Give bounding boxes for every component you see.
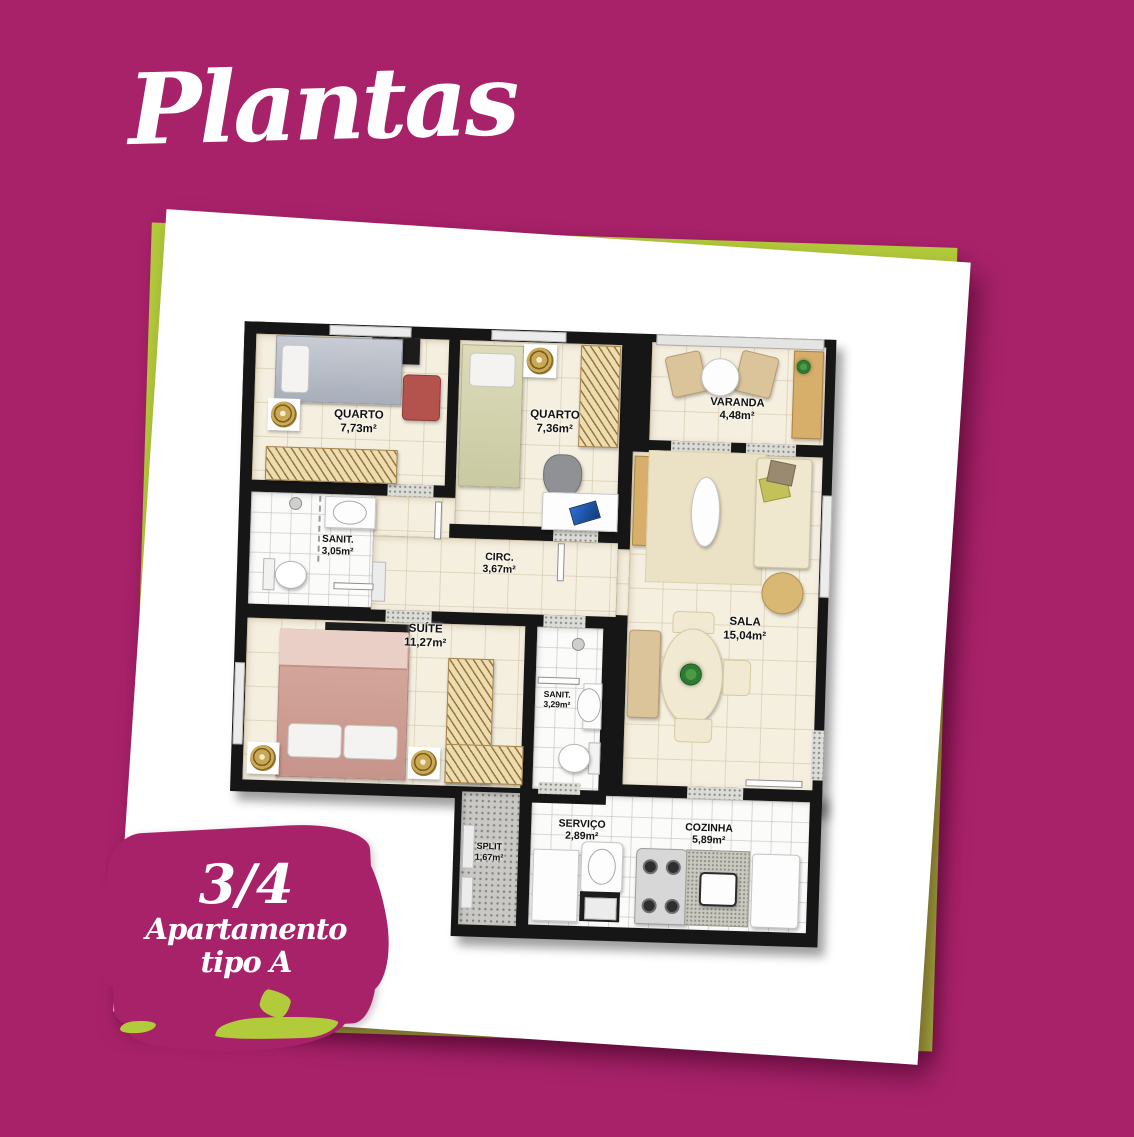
stove	[634, 848, 688, 926]
corridor-arm-floor	[373, 495, 455, 538]
fridge	[750, 853, 800, 928]
room-label-quarto-2: QUARTO7,36m²	[499, 407, 610, 438]
pillow	[287, 723, 342, 759]
door-leaf-sanit-1	[333, 582, 373, 590]
stove-burner	[641, 898, 656, 913]
stove-burner	[666, 860, 681, 875]
room-label-cozinha: COZINHA5,89m²	[666, 821, 753, 848]
corridor-floor	[371, 535, 618, 617]
shower-glass	[538, 677, 580, 685]
room-label-sanit-1: SANIT.3,05m²	[305, 533, 370, 559]
door-threshold-cozinha	[687, 786, 743, 800]
unit-type-line-1: Apartamento	[100, 913, 392, 946]
pillow	[343, 725, 398, 761]
door-threshold-sala-right	[811, 730, 825, 780]
wardrobe-suite-horizontal	[444, 744, 523, 785]
room-label-circ: CIRC.3,67m²	[459, 550, 540, 577]
room-label-quarto-1: QUARTO7,73m²	[303, 407, 414, 438]
door-leaf-quarto-1	[434, 501, 442, 539]
unit-type-line-2: tipo A	[100, 946, 392, 979]
wardrobe-quarto-1	[265, 446, 398, 484]
page-title: Plantas	[127, 43, 518, 168]
dining-chair	[674, 718, 713, 743]
tank-niche-inner	[584, 897, 617, 920]
room-label-suite: SUÍTE11,27m²	[368, 621, 484, 652]
dining-chair	[722, 659, 751, 696]
door-opening-sanit-1	[371, 561, 386, 601]
unit-badge-text: 3/4 Apartamento tipo A	[100, 856, 392, 979]
door-leaf-quarto-2	[557, 543, 565, 581]
dining-bench	[627, 629, 662, 718]
room-label-split: SPLIT1,67m²	[460, 840, 519, 863]
split-shelf	[460, 876, 473, 908]
toilet-tank	[262, 558, 275, 590]
kitchen-sink	[699, 872, 738, 907]
unit-badge: 3/4 Apartamento tipo A	[100, 822, 392, 1047]
stove-burner	[664, 899, 679, 914]
room-label-varanda: VARANDA4,48m²	[672, 395, 803, 425]
pillow	[469, 352, 516, 387]
room-label-sanit-2: SANIT.3,29m²	[531, 688, 584, 710]
washing-machine	[531, 849, 579, 922]
window-sala	[819, 495, 832, 597]
stove-burner	[643, 859, 658, 874]
corridor-sala-opening	[616, 549, 630, 615]
unit-fraction: 3/4	[100, 856, 392, 913]
door-threshold-quarto-1	[387, 484, 433, 497]
room-label-servico: SERVIÇO2,89m²	[544, 817, 621, 844]
pillow	[281, 344, 310, 393]
brochure-page: { "title": "Plantas", "badge": { "fracti…	[0, 0, 1134, 1137]
room-label-sala: SALA15,04m²	[687, 614, 803, 645]
door-threshold-servico	[538, 782, 580, 795]
door-threshold-sanit-2	[543, 615, 585, 628]
